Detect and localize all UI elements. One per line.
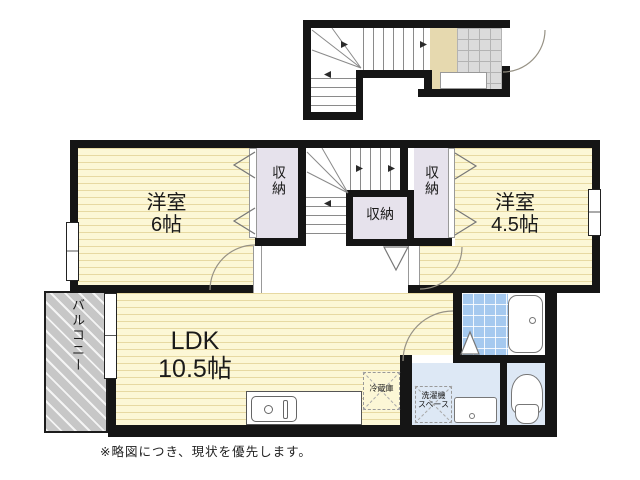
window: [588, 189, 601, 236]
wall: [545, 285, 557, 437]
upper-stair-flight: [363, 28, 432, 70]
room-western6-label: 洋室 6帖: [78, 192, 255, 237]
faucet-icon: [283, 400, 288, 419]
room-name: 洋室: [78, 192, 255, 214]
wall: [303, 20, 311, 120]
door-opening-western6: [253, 246, 262, 293]
bathtub-drain-icon: [529, 317, 536, 324]
wall: [70, 140, 78, 224]
washroom-door-opening: [412, 355, 453, 363]
wall: [408, 285, 592, 293]
room-western45-label: 洋室 4.5帖: [445, 192, 585, 237]
balcony-sliding-door: [104, 293, 117, 379]
wall: [108, 379, 116, 425]
washbasin-drain-icon: [469, 413, 475, 419]
wall: [303, 20, 510, 28]
floor-plan: 洋室 6帖 洋室 4.5帖 LDK 10.5帖 収納 収納 収納 バルコニー 冷…: [0, 0, 640, 480]
wall: [356, 78, 363, 120]
wall: [592, 234, 600, 293]
wall: [408, 238, 452, 246]
bathtub: [508, 295, 543, 353]
room-size: 10.5帖: [120, 355, 270, 383]
wall: [303, 112, 363, 120]
wall: [108, 425, 557, 437]
main-winder-stairs: [306, 148, 350, 195]
toilet-seat-icon: [515, 404, 539, 424]
room-name: LDK: [120, 327, 270, 355]
washbasin: [454, 397, 497, 423]
ldk-floor-east: [408, 293, 453, 355]
wall: [356, 70, 432, 78]
entrance-step: [440, 72, 487, 89]
stair-arrow-icon: [324, 71, 331, 78]
closet-left-label: 収納: [269, 165, 289, 227]
room-size: 6帖: [78, 214, 255, 236]
disclaimer-note: ※略図につき、現状を優先します。: [100, 441, 312, 460]
closet-right-label: 収納: [422, 165, 442, 227]
wall: [453, 293, 462, 355]
laundry-space-label: 洗濯機 スペース: [413, 392, 454, 410]
room-name: 洋室: [445, 192, 585, 214]
room-size: 4.5帖: [445, 214, 585, 236]
room-ldk-label: LDK 10.5帖: [120, 327, 270, 383]
kitchen-sink: [251, 396, 297, 422]
main-stair-flight-upper: [350, 148, 400, 190]
wall: [70, 285, 255, 293]
main-stair-flight-lower: [306, 197, 350, 238]
wall: [400, 355, 412, 425]
wall: [70, 140, 600, 148]
wall: [424, 70, 432, 97]
stair-hall-floor: [262, 238, 408, 293]
laundry-line2: スペース: [413, 401, 454, 410]
wall: [453, 355, 545, 363]
bathroom-tile-floor: [462, 293, 508, 355]
upper-stair-stub: [311, 78, 356, 112]
sink-drain-icon: [264, 405, 273, 414]
fridge-space-label: 冷蔵庫: [363, 385, 400, 394]
wall: [592, 140, 600, 191]
wall: [500, 363, 507, 425]
door-opening-western45: [408, 246, 420, 285]
balcony-label: バルコニー: [68, 298, 87, 430]
wall: [255, 238, 306, 246]
room-western45-floor-strip: [420, 246, 455, 285]
closet-center-label: 収納: [346, 207, 414, 223]
wall: [298, 146, 306, 238]
upper-winder-stairs: [311, 28, 363, 70]
